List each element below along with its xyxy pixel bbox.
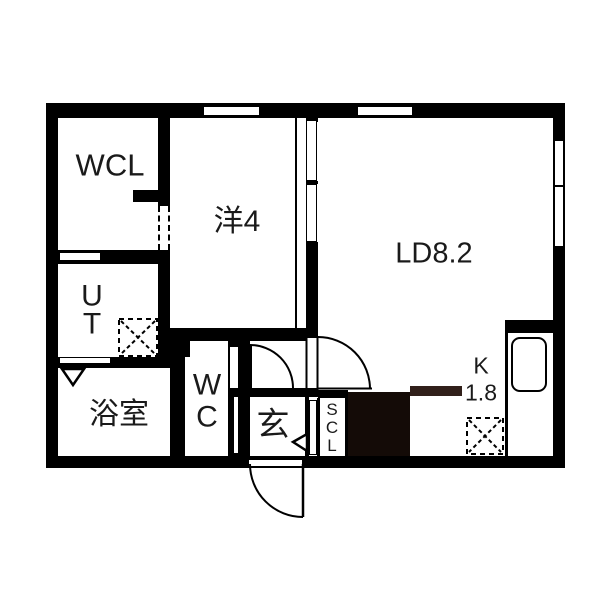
room-label-utility: U T <box>81 282 103 337</box>
refrigerator-space <box>467 418 503 454</box>
washing-machine-space <box>119 319 157 356</box>
door-swing-arc-entrance <box>250 464 303 517</box>
room-label-kitchen-size: 1.8 <box>465 382 497 405</box>
door-direction-triangle-entrance <box>293 434 307 451</box>
kitchen-sink <box>512 338 546 391</box>
room-label-western-room: 洋4 <box>214 207 261 237</box>
room-label-bathroom: 浴室 <box>89 400 149 430</box>
door-swing-arc-ld <box>318 337 370 389</box>
door-leaf-ld <box>307 337 318 389</box>
room-label-kitchen: K <box>473 355 488 378</box>
room-label-wcl: WCL <box>76 150 145 181</box>
room-label-living-dining: LD8.2 <box>395 240 472 269</box>
door-swing-arc-hall <box>250 345 293 388</box>
room-label-entrance: 玄 <box>257 408 290 441</box>
room-label-shoe-closet: S C L <box>326 401 338 455</box>
floorplan-canvas: WCL 洋4 LD8.2 U T 浴室 W C 玄 S C L K 1.8 <box>0 0 600 600</box>
door-direction-triangle-bath <box>62 369 84 385</box>
room-label-toilet: W C <box>193 370 221 433</box>
